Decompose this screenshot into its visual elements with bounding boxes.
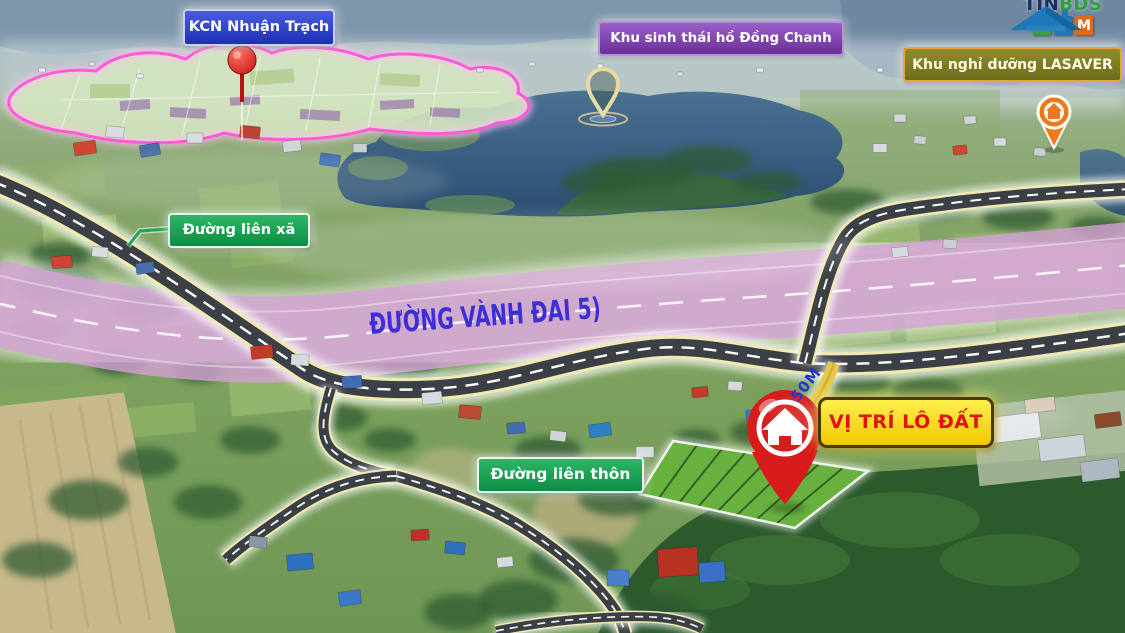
label-resort: Khu nghỉ dưỡng LASAVER: [903, 47, 1122, 82]
label-village-road: Đường liên thôn: [477, 457, 644, 493]
logo-house-icon: [1004, 2, 1088, 32]
label-commune-road: Đường liên xã: [168, 213, 310, 248]
label-plot-location: VỊ TRÍ LÔ ĐẤT: [818, 397, 994, 448]
aerial-map: ĐƯỜNG VÀNH ĐAI 5) 50M KCN Nhuận Trạch Kh…: [0, 0, 1125, 633]
tinbds-logo: TINBDS C O M: [1004, 2, 1122, 35]
label-eco-area: Khu sinh thái hồ Đồng Chanh: [598, 21, 844, 56]
label-industrial-zone: KCN Nhuận Trạch: [183, 9, 335, 46]
scene-svg: ĐƯỜNG VÀNH ĐAI 5) 50M: [0, 0, 1125, 633]
